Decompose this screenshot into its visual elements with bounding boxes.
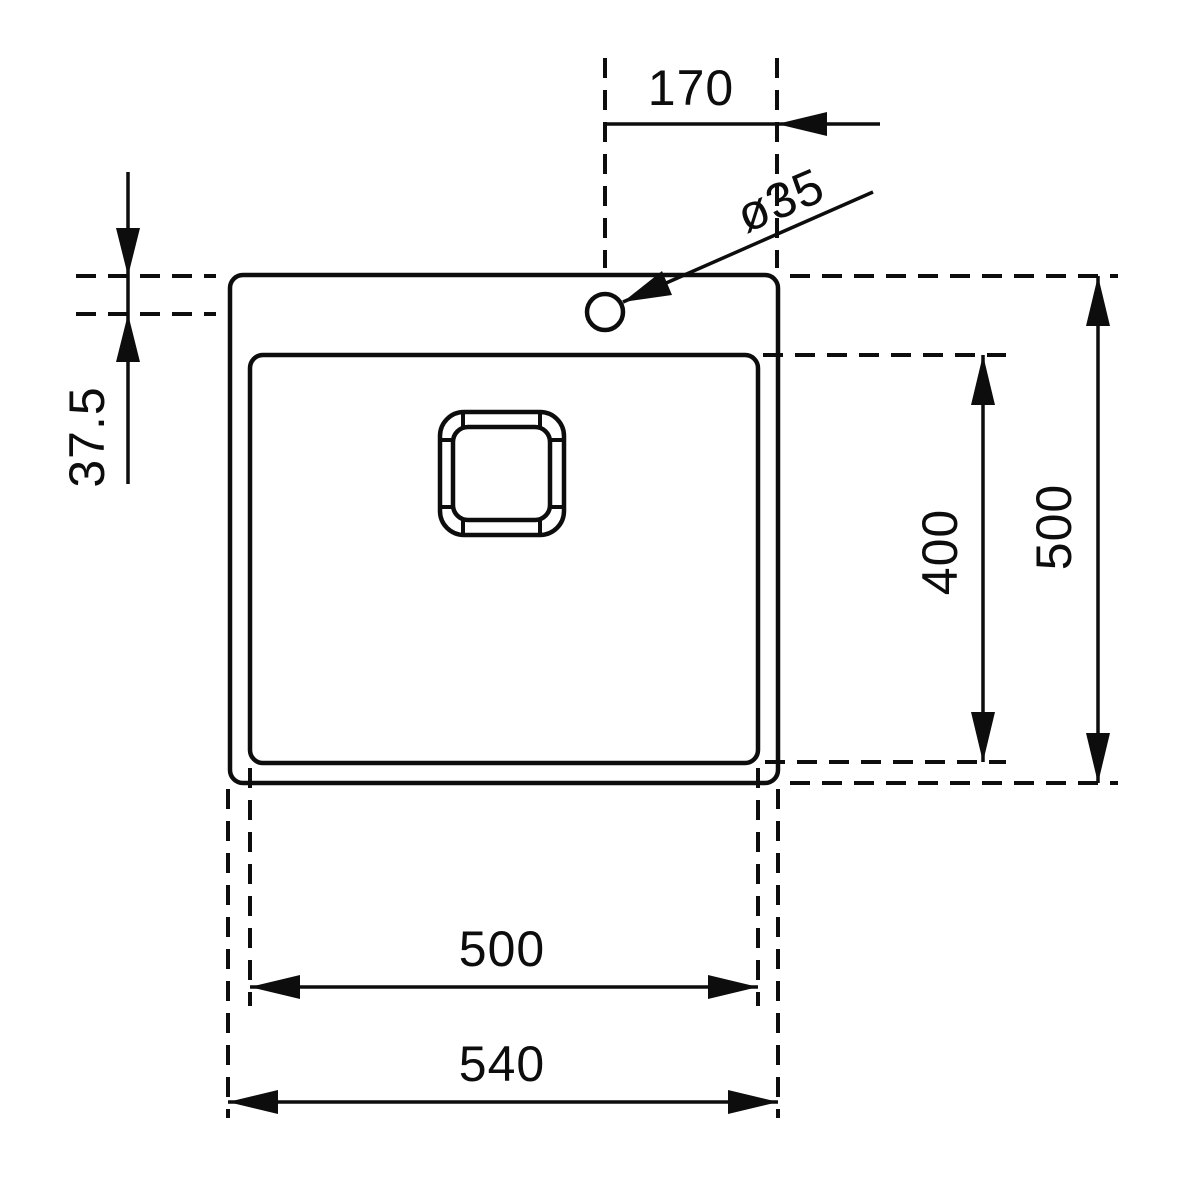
dim-500-right-arrow-down-icon xyxy=(1086,733,1110,783)
dim-37-5-arrow-down-icon xyxy=(116,228,140,276)
dimension-overall-width: 540 xyxy=(228,1036,778,1114)
dim-37-5-label: 37.5 xyxy=(59,386,115,487)
faucet-hole xyxy=(587,294,623,330)
dim-500-bottom-arrow-left-icon xyxy=(250,975,300,999)
dim-540-arrow-left-icon xyxy=(228,1090,278,1114)
dim-500-bottom-label: 500 xyxy=(459,921,545,977)
dimension-bowl-length: 400 xyxy=(912,355,995,762)
drain-square xyxy=(440,412,564,535)
dim-540-label: 540 xyxy=(459,1036,545,1092)
sink-dimensional-drawing: 170 ø35 37.5 400 500 xyxy=(0,0,1200,1200)
dimension-bowl-width: 500 xyxy=(250,921,758,999)
sink-outer-edge xyxy=(230,275,778,783)
sink-body xyxy=(230,275,778,783)
drain-inner-frame xyxy=(453,427,550,520)
dimension-faucet-offset-right: 170 xyxy=(605,60,880,136)
dimension-faucet-diameter: ø35 xyxy=(623,157,873,302)
dim-540-arrow-right-icon xyxy=(728,1090,778,1114)
dim-diameter-label: ø35 xyxy=(728,157,832,243)
dim-400-arrow-down-icon xyxy=(971,712,995,762)
dimension-faucet-offset-top: 37.5 xyxy=(59,172,140,488)
dim-170-arrow-left-icon xyxy=(777,112,827,136)
dim-500-right-arrow-up-icon xyxy=(1086,276,1110,326)
dimension-overall-length: 500 xyxy=(1026,276,1110,783)
dim-170-label: 170 xyxy=(648,60,734,116)
technical-drawing-page: 170 ø35 37.5 400 500 xyxy=(0,0,1200,1200)
dim-500-right-label: 500 xyxy=(1026,484,1082,570)
dim-500-bottom-arrow-right-icon xyxy=(708,975,758,999)
dim-37-5-arrow-up-icon xyxy=(116,314,140,362)
dim-400-arrow-up-icon xyxy=(971,355,995,405)
dim-400-label: 400 xyxy=(912,509,968,595)
sink-bowl-edge xyxy=(250,355,758,763)
